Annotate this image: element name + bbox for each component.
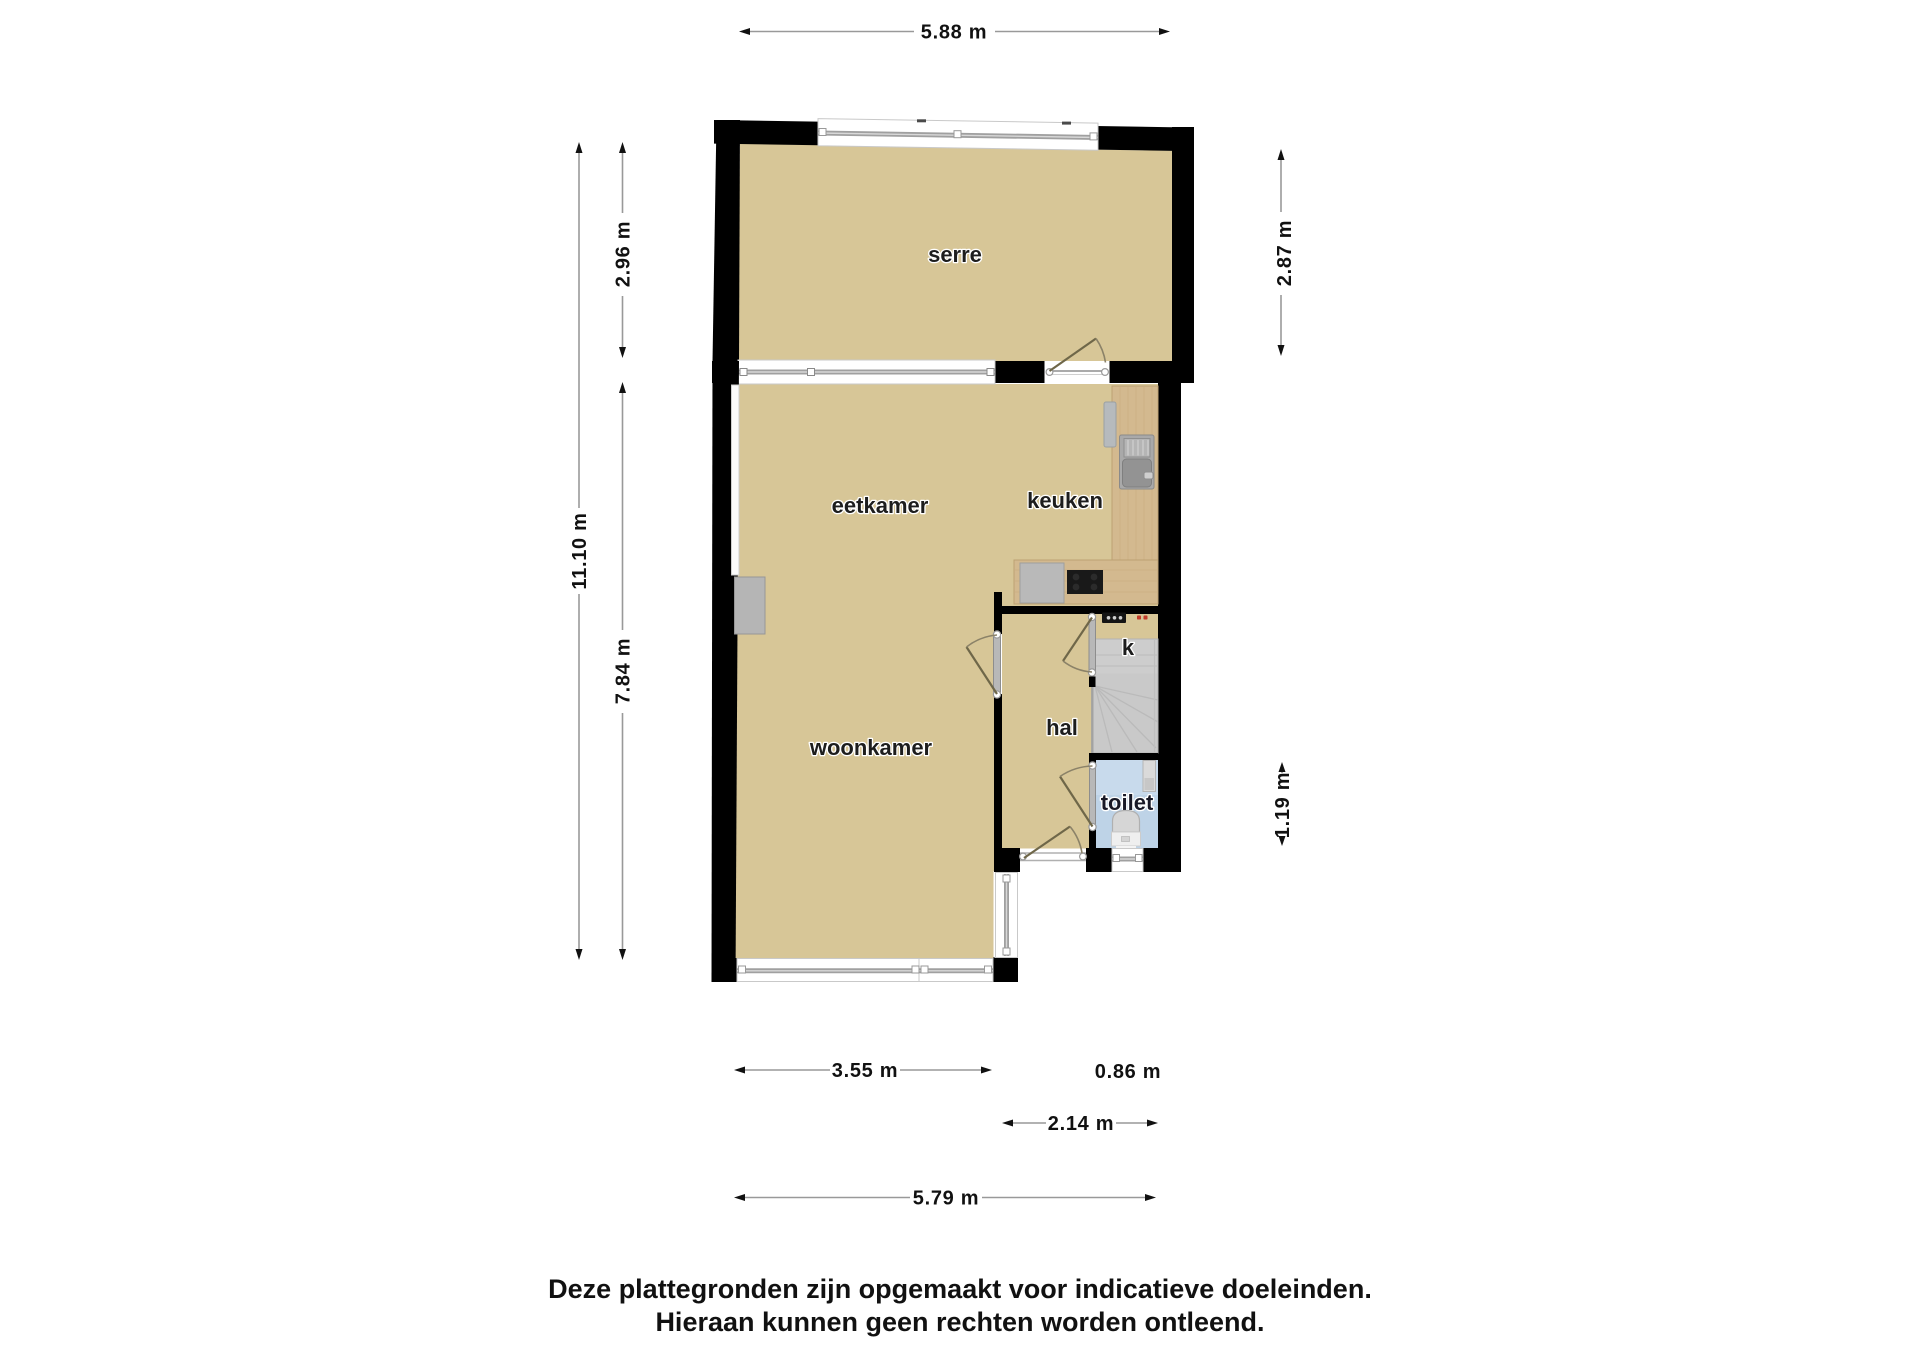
svg-text:keuken: keuken <box>1027 488 1103 513</box>
svg-text:hal: hal <box>1046 715 1078 740</box>
svg-text:5.79 m: 5.79 m <box>913 1188 979 1210</box>
svg-text:1.19 m: 1.19 m <box>1272 772 1294 838</box>
svg-text:3.55 m: 3.55 m <box>832 1060 898 1082</box>
svg-text:2.96 m: 2.96 m <box>613 221 635 287</box>
svg-text:eetkamer: eetkamer <box>832 493 929 518</box>
svg-text:2.87 m: 2.87 m <box>1274 220 1296 286</box>
svg-text:woonkamer: woonkamer <box>809 735 933 760</box>
svg-text:5.88 m: 5.88 m <box>921 22 987 44</box>
svg-text:2.14 m: 2.14 m <box>1048 1113 1114 1135</box>
svg-text:7.84 m: 7.84 m <box>613 638 635 704</box>
svg-text:11.10 m: 11.10 m <box>569 512 591 589</box>
svg-text:Deze plattegronden zijn opgema: Deze plattegronden zijn opgemaakt voor i… <box>548 1274 1372 1304</box>
svg-text:serre: serre <box>928 242 982 267</box>
svg-text:k: k <box>1122 635 1135 660</box>
svg-text:0.86 m: 0.86 m <box>1095 1061 1161 1083</box>
svg-text:Hieraan kunnen geen rechten wo: Hieraan kunnen geen rechten worden ontle… <box>655 1307 1264 1337</box>
